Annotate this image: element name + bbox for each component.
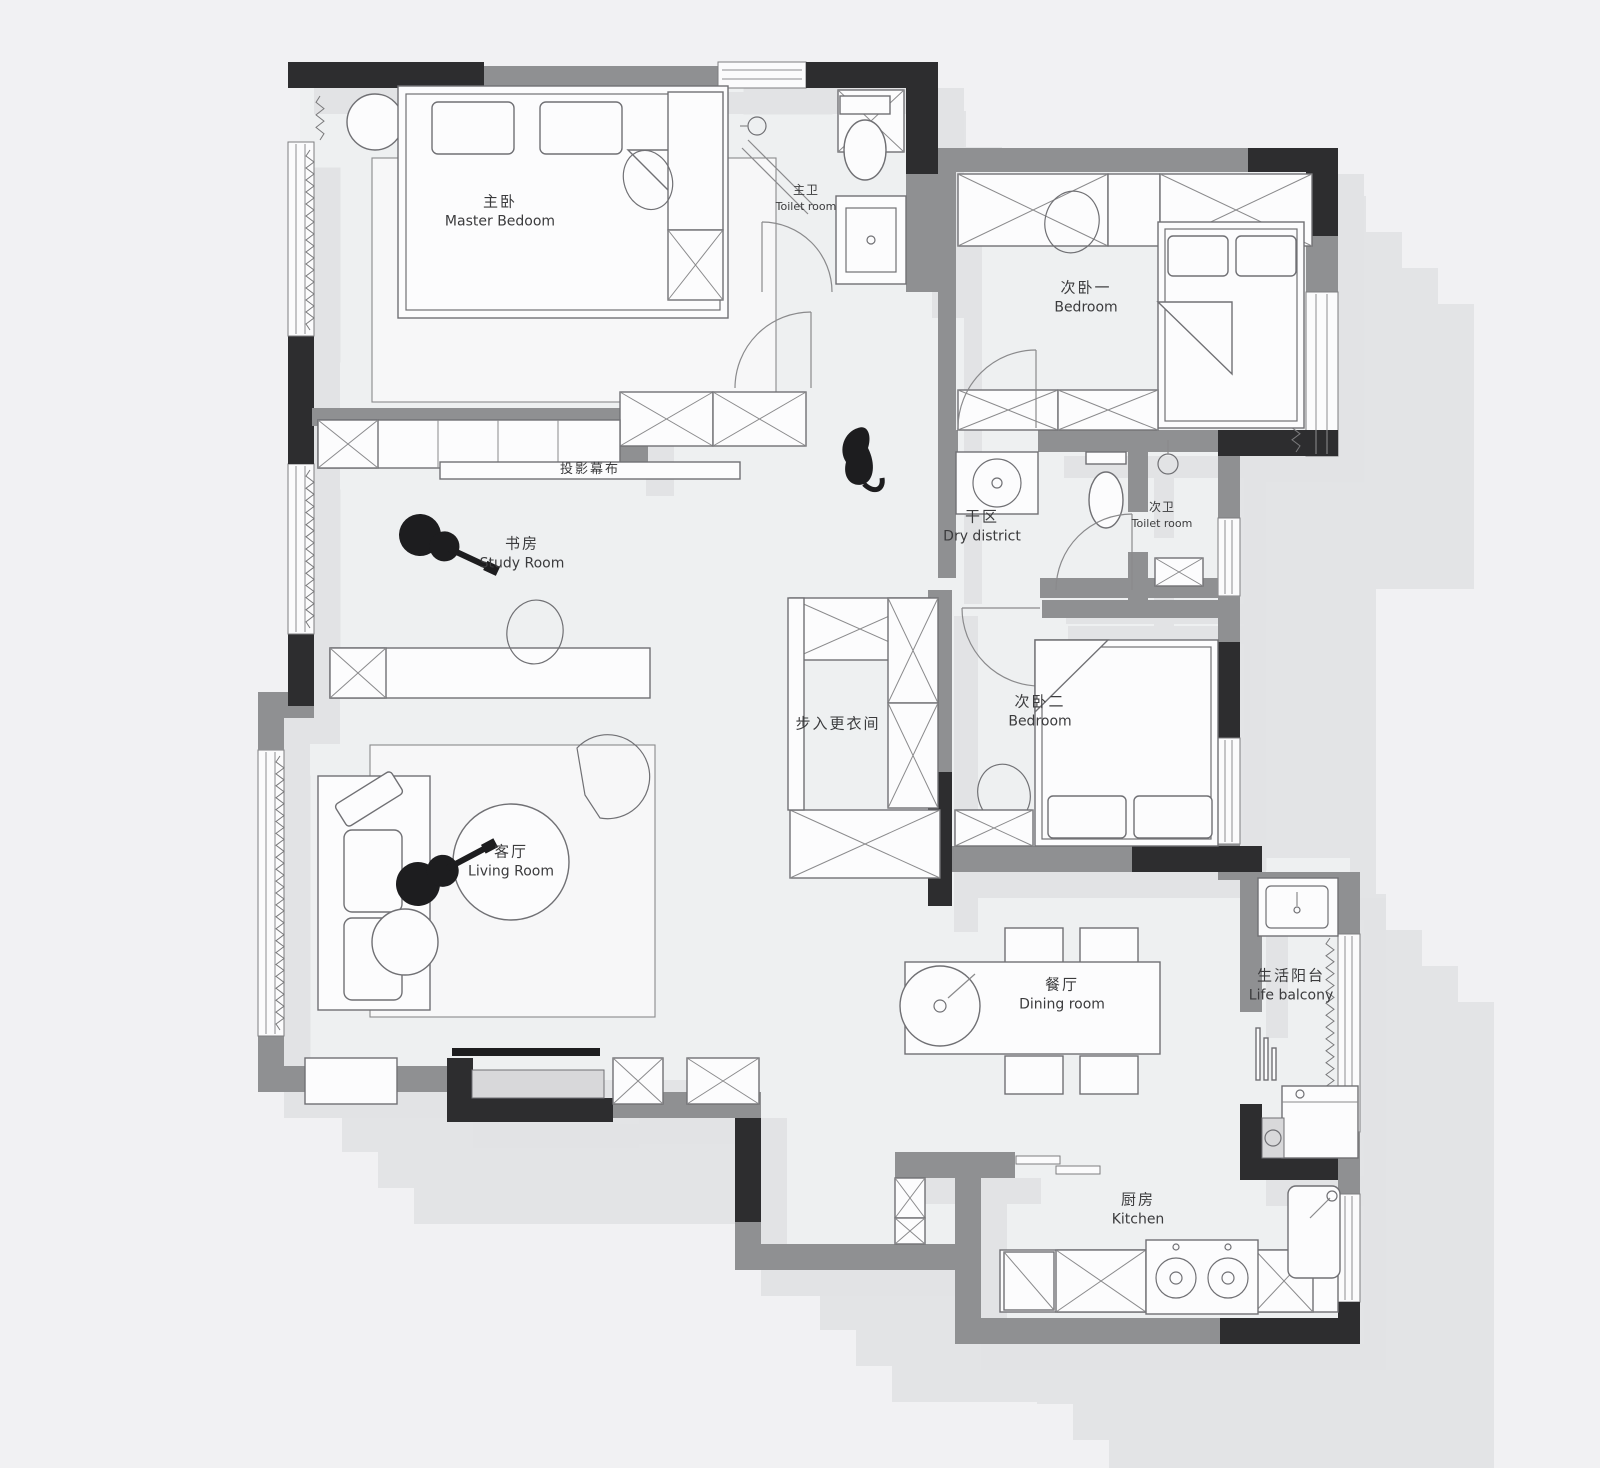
cabinet-xbox (1058, 390, 1158, 430)
counter-xbox (1056, 1250, 1146, 1312)
room-label-dry-district: 干区 Dry district (943, 507, 1021, 548)
room-label-walk-in-closet: 步入更衣间 (795, 714, 880, 735)
room-label-second-toilet: 次卫 Toilet room (1132, 499, 1193, 531)
wardrobe-xbox (888, 598, 938, 703)
room-name-zh: 主卫 (776, 182, 837, 199)
kitchen-sink (1288, 1186, 1340, 1278)
drying-rack (1256, 1028, 1260, 1080)
room-name-en: Bedroom (1054, 299, 1117, 319)
shoe-cabinet-xbox (895, 1218, 925, 1244)
room-name-en: Dry district (943, 528, 1021, 548)
room-label-master-bedroom: 主卧 Master Bedoom (445, 192, 555, 233)
room-name-zh: 书房 (480, 534, 565, 555)
cabinet-xbox (955, 810, 1033, 846)
toilet (1089, 472, 1123, 528)
room-name-zh: 投影幕布 (560, 461, 620, 479)
room-label-kitchen: 厨房 Kitchen (1112, 1190, 1165, 1231)
wardrobe-xbox (790, 810, 940, 878)
cabinet-xbox (318, 420, 378, 468)
floor-plan-canvas: 主卧 Master Bedoom 主卫 Toilet room 次卧一 Bedr… (0, 0, 1600, 1468)
room-name-zh: 客厅 (468, 842, 554, 863)
room-label-dining-room: 餐厅 Dining room (1019, 975, 1105, 1016)
room-name-zh: 步入更衣间 (795, 714, 880, 735)
shelf-column (788, 598, 804, 810)
cabinet-xbox (687, 1058, 759, 1104)
pillow (1168, 236, 1228, 276)
dining-chair (1005, 928, 1063, 966)
room-label-bedroom-two: 次卧二 Bedroom (1008, 692, 1071, 733)
washing-machine (1282, 1086, 1358, 1158)
sliding-door (1016, 1156, 1060, 1164)
hall-closet-xbox (620, 392, 713, 446)
pillow (1134, 796, 1212, 838)
room-label-life-balcony: 生活阳台 Life balcony (1249, 966, 1333, 1007)
tv (452, 1048, 600, 1056)
toilet-tank (840, 96, 890, 114)
stove (1146, 1240, 1258, 1314)
room-name-en: Toilet room (1132, 516, 1193, 531)
cabinet-xbox (958, 390, 1058, 430)
dining-chair (1080, 928, 1138, 966)
room-label-study-room: 书房 Study Room (480, 534, 565, 575)
room-name-en: Master Bedoom (445, 213, 555, 233)
wardrobe-xbox (888, 703, 938, 808)
wardrobe-xbox (958, 174, 1108, 246)
radiator-xbox (1155, 558, 1203, 586)
room-name-en: Study Room (480, 555, 565, 575)
sofa-cushion (344, 830, 402, 912)
ottoman (372, 909, 438, 975)
room-name-zh: 餐厅 (1019, 975, 1105, 996)
dining-chair (1005, 1056, 1063, 1094)
shoe-cabinet-xbox (895, 1178, 925, 1218)
pillow (540, 102, 622, 154)
hall-closet-xbox (713, 392, 806, 446)
toilet-tank (1086, 452, 1126, 464)
room-label-master-toilet: 主卫 Toilet room (776, 182, 837, 214)
sliding-door (1056, 1166, 1100, 1174)
room-name-zh: 次卧二 (1008, 692, 1071, 713)
wardrobe-xbox (668, 230, 723, 300)
pillow (1236, 236, 1296, 276)
cabinet (305, 1058, 397, 1104)
toilet (844, 120, 886, 180)
room-label-bedroom-one: 次卧一 Bedroom (1054, 278, 1117, 319)
cabinet-xbox (330, 648, 386, 698)
hot-pot (900, 966, 980, 1046)
tv-console (472, 1070, 604, 1098)
dining-chair (1080, 1056, 1138, 1094)
room-label-living-room: 客厅 Living Room (468, 842, 554, 883)
room-name-zh: 生活阳台 (1249, 966, 1333, 987)
master-bedroom-furniture (347, 86, 776, 402)
pillow (432, 102, 514, 154)
pillow (1048, 796, 1126, 838)
wardrobe (668, 92, 723, 230)
room-name-zh: 次卫 (1132, 499, 1193, 516)
room-name-en: Bedroom (1008, 713, 1071, 733)
room-name-zh: 次卧一 (1054, 278, 1117, 299)
room-name-en: Life balcony (1249, 987, 1333, 1007)
room-name-zh: 干区 (943, 507, 1021, 528)
room-name-en: Living Room (468, 863, 554, 883)
room-name-en: Kitchen (1112, 1211, 1165, 1231)
room-name-zh: 主卧 (445, 192, 555, 213)
room-name-zh: 厨房 (1112, 1190, 1165, 1211)
room-label-projection-screen: 投影幕布 (560, 461, 620, 479)
room-name-en: Toilet room (776, 199, 837, 214)
room-name-en: Dining room (1019, 996, 1105, 1016)
washstand (956, 452, 1038, 514)
side-table (347, 94, 403, 150)
cabinet-xbox (613, 1058, 663, 1104)
